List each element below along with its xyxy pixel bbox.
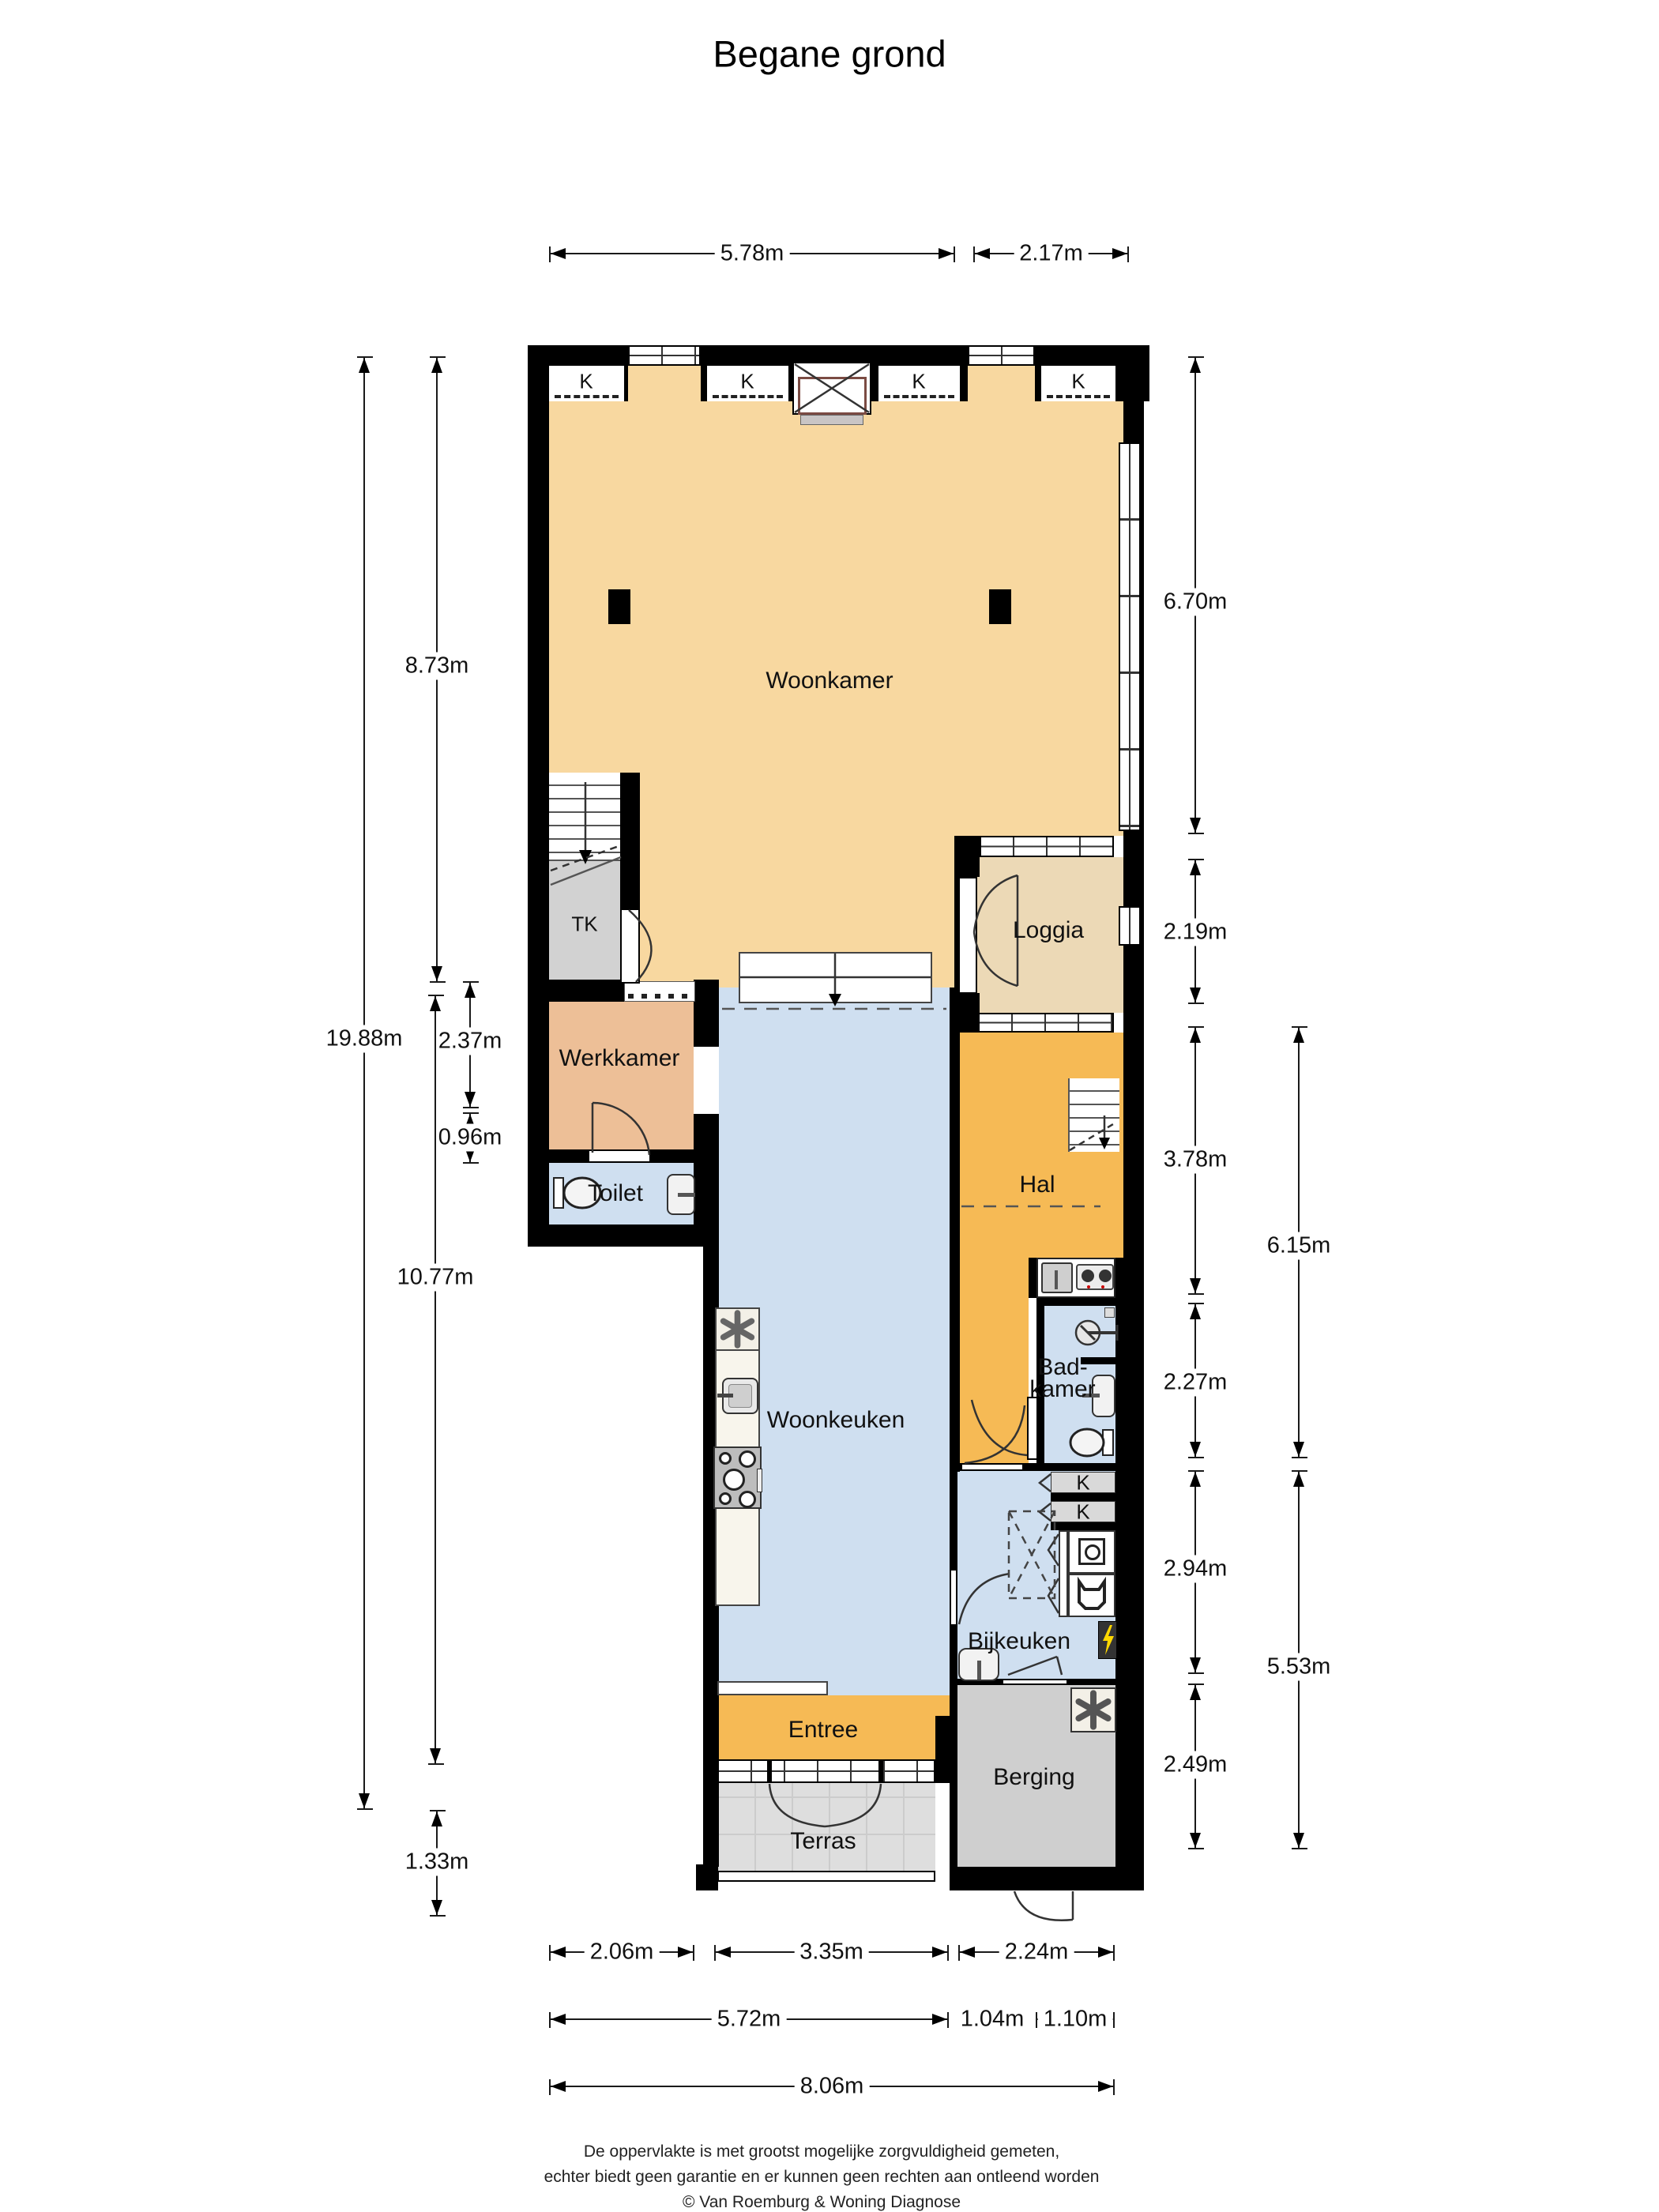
label-toilet: Toilet <box>588 1180 643 1207</box>
stairs-cut-line <box>1070 1122 1117 1150</box>
closet-fold-door <box>1048 1578 1059 1613</box>
door-swing <box>974 875 1018 932</box>
reserved-space-outline <box>1009 1511 1055 1598</box>
label-hal: Hal <box>1019 1172 1055 1198</box>
label-bijkeuken: Bijkeuken <box>968 1628 1070 1655</box>
door-swing <box>965 1405 1025 1463</box>
door-swing <box>769 1784 825 1826</box>
label-k: K <box>740 370 754 394</box>
label-k: K <box>1076 1500 1089 1525</box>
label-werkkamer: Werkkamer <box>559 1045 680 1072</box>
floorplan-page: Begane grond <box>0 0 1659 2212</box>
steps-down-arrow-icon <box>829 994 841 1006</box>
door-swing <box>825 1784 881 1826</box>
label-k: K <box>579 370 592 394</box>
label-entree: Entree <box>788 1717 858 1744</box>
label-k: K <box>1076 1471 1089 1495</box>
stairs-down-arrow-icon <box>1099 1138 1110 1149</box>
label-k: K <box>1071 370 1085 394</box>
door-swing <box>974 932 1018 986</box>
door-swing <box>1014 1891 1073 1920</box>
door-swing <box>629 910 651 982</box>
plan-linework <box>0 0 1659 2212</box>
door-swing <box>959 1574 1010 1624</box>
label-woonkamer: Woonkamer <box>766 668 893 694</box>
label-loggia: Loggia <box>1013 917 1084 944</box>
label-terras: Terras <box>790 1828 856 1855</box>
label-woonkeuken: Woonkeuken <box>767 1407 905 1434</box>
door-swing <box>592 1103 649 1155</box>
label-k: K <box>912 370 925 394</box>
closet-fold-door <box>1040 1474 1051 1492</box>
door-fold <box>1008 1657 1062 1675</box>
label-badkamer-2: kamer <box>1029 1376 1095 1403</box>
closet-fold-door <box>1048 1534 1059 1566</box>
label-berging: Berging <box>993 1764 1074 1791</box>
label-tk: TK <box>571 912 597 937</box>
toilet-bowl-icon <box>1070 1429 1104 1456</box>
